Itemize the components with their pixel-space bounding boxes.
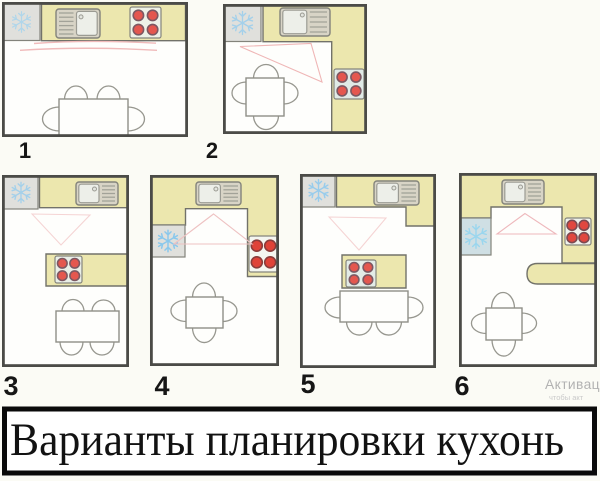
svg-text:Варианты планировки кухонь: Варианты планировки кухонь: [10, 414, 564, 466]
svg-text:2: 2: [206, 138, 218, 163]
svg-text:6: 6: [454, 371, 469, 401]
svg-text:4: 4: [154, 371, 169, 401]
svg-text:1: 1: [19, 138, 31, 163]
svg-text:3: 3: [3, 371, 18, 401]
svg-text:5: 5: [300, 369, 315, 399]
svg-text:чтобы акт: чтобы акт: [549, 393, 584, 402]
svg-text:Активац: Активац: [545, 377, 600, 392]
